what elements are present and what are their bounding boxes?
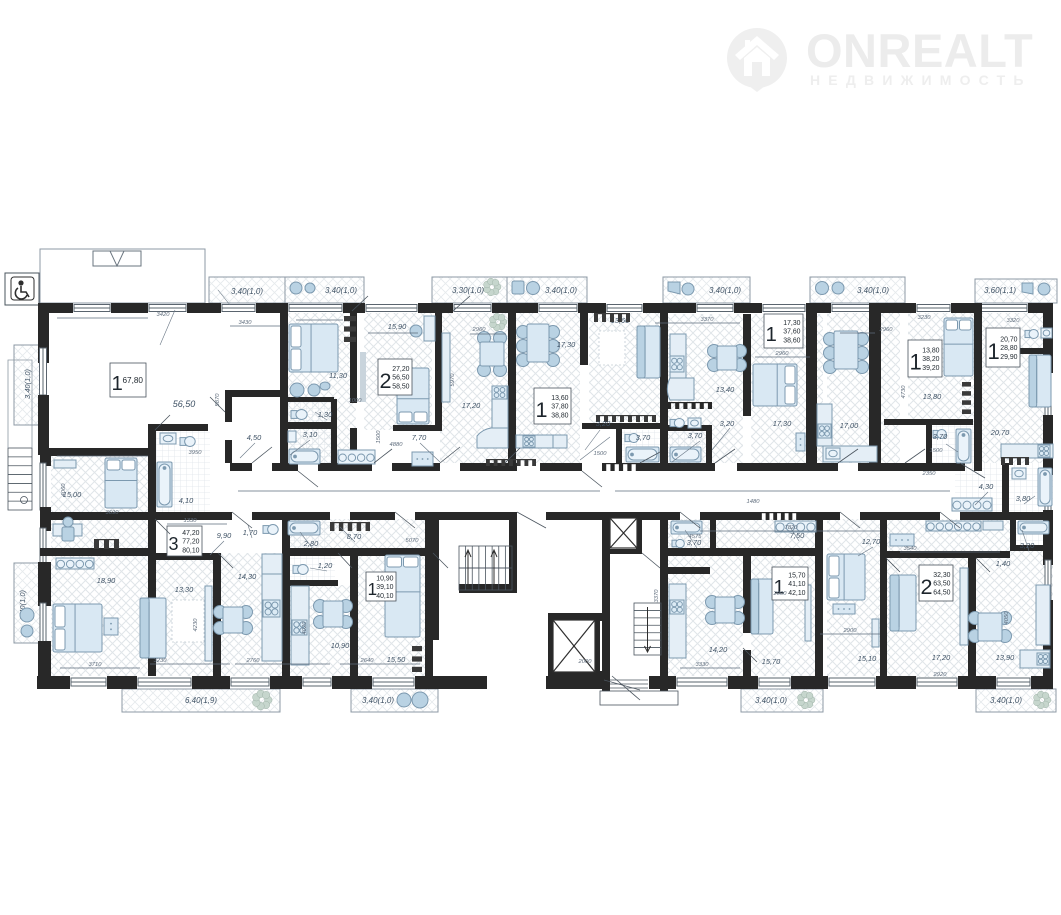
svg-text:2760: 2760 — [246, 658, 261, 664]
svg-text:58,50: 58,50 — [392, 383, 409, 390]
svg-text:63,50: 63,50 — [933, 581, 950, 588]
svg-text:38,80: 38,80 — [551, 412, 568, 419]
svg-text:27,20: 27,20 — [392, 366, 409, 373]
svg-text:4,10: 4,10 — [179, 496, 194, 505]
svg-text:7,70: 7,70 — [412, 433, 427, 442]
svg-text:2640: 2640 — [360, 658, 375, 664]
svg-text:17,30: 17,30 — [783, 320, 800, 327]
svg-text:20,70: 20,70 — [1000, 337, 1017, 344]
svg-text:1: 1 — [112, 373, 123, 395]
svg-text:5070: 5070 — [406, 538, 420, 544]
svg-text:3,10: 3,10 — [303, 430, 318, 439]
svg-text:7820: 7820 — [785, 525, 799, 531]
svg-text:1500: 1500 — [376, 430, 382, 444]
svg-text:4230: 4230 — [193, 618, 199, 632]
svg-text:4730: 4730 — [901, 385, 907, 399]
svg-text:4,50: 4,50 — [247, 433, 262, 442]
svg-text:1,30: 1,30 — [318, 410, 333, 419]
svg-text:3,40(1,0): 3,40(1,0) — [362, 696, 394, 705]
svg-text:3690: 3690 — [106, 510, 120, 516]
svg-text:2: 2 — [380, 368, 392, 393]
svg-text:4575: 4575 — [689, 534, 703, 540]
svg-text:2350: 2350 — [922, 471, 937, 477]
svg-text:3,40(1,0): 3,40(1,0) — [755, 696, 787, 705]
svg-text:4050: 4050 — [1004, 611, 1010, 625]
svg-text:НЕДВИЖИМОСТЬ: НЕДВИЖИМОСТЬ — [810, 72, 1032, 88]
svg-text:1500: 1500 — [594, 451, 608, 457]
svg-text:3,40(1,0): 3,40(1,0) — [325, 286, 357, 295]
svg-text:3,70: 3,70 — [688, 431, 703, 440]
svg-text:13,80: 13,80 — [923, 392, 942, 401]
svg-text:2960: 2960 — [775, 351, 790, 357]
svg-text:4880: 4880 — [390, 442, 404, 448]
svg-text:3950: 3950 — [189, 450, 203, 456]
svg-text:1: 1 — [910, 350, 922, 375]
svg-text:3430: 3430 — [239, 320, 253, 326]
svg-text:14,30: 14,30 — [238, 572, 257, 581]
svg-text:ONREALT: ONREALT — [806, 24, 1033, 77]
svg-text:3370: 3370 — [701, 317, 715, 323]
svg-text:15,70: 15,70 — [788, 573, 805, 580]
svg-text:28,80: 28,80 — [1000, 345, 1017, 352]
svg-text:3,40(1,0): 3,40(1,0) — [990, 696, 1022, 705]
svg-text:37,80: 37,80 — [551, 404, 568, 411]
svg-text:3370: 3370 — [654, 589, 660, 603]
svg-text:3,20: 3,20 — [596, 419, 611, 428]
svg-text:37,60: 37,60 — [783, 329, 800, 336]
svg-text:64,50: 64,50 — [933, 589, 950, 596]
svg-text:47,20: 47,20 — [182, 530, 199, 537]
svg-text:3,40(1,0): 3,40(1,0) — [231, 287, 263, 296]
svg-text:80,10: 80,10 — [182, 547, 199, 554]
svg-text:15,10: 15,10 — [858, 654, 877, 663]
svg-text:2960: 2960 — [472, 327, 487, 333]
svg-text:38,60: 38,60 — [783, 337, 800, 344]
svg-text:39,20: 39,20 — [922, 365, 939, 372]
svg-text:29,90: 29,90 — [1000, 354, 1017, 361]
svg-text:13,90: 13,90 — [996, 653, 1015, 662]
svg-text:67,80: 67,80 — [123, 376, 144, 385]
svg-text:56,50: 56,50 — [392, 375, 409, 382]
svg-text:56,50: 56,50 — [173, 399, 196, 409]
svg-text:10,90: 10,90 — [376, 576, 393, 583]
svg-text:1: 1 — [766, 324, 777, 346]
svg-text:12,70: 12,70 — [862, 537, 881, 546]
svg-text:17,20: 17,20 — [932, 653, 951, 662]
svg-text:3710: 3710 — [89, 662, 103, 668]
svg-text:17,20: 17,20 — [462, 401, 481, 410]
svg-text:18,90: 18,90 — [97, 576, 116, 585]
svg-text:17,30: 17,30 — [557, 340, 576, 349]
svg-text:1: 1 — [988, 339, 1000, 364]
svg-text:40,10: 40,10 — [376, 593, 393, 600]
svg-text:38,20: 38,20 — [922, 356, 939, 363]
svg-text:3230: 3230 — [154, 658, 168, 664]
svg-text:1,40: 1,40 — [996, 559, 1011, 568]
svg-text:11,30: 11,30 — [329, 371, 348, 380]
svg-text:77,20: 77,20 — [182, 539, 199, 546]
svg-text:4020: 4020 — [302, 621, 308, 635]
svg-text:3,70: 3,70 — [933, 432, 948, 441]
svg-text:13,80: 13,80 — [922, 348, 939, 355]
svg-text:2000: 2000 — [578, 659, 593, 665]
svg-text:13,30: 13,30 — [175, 585, 194, 594]
svg-text:2920: 2920 — [933, 672, 948, 678]
svg-text:5970: 5970 — [450, 373, 456, 387]
svg-text:13,40: 13,40 — [716, 385, 735, 394]
svg-text:6,40(1,9): 6,40(1,9) — [185, 696, 217, 705]
svg-text:3,40(1,0): 3,40(1,0) — [709, 286, 741, 295]
svg-text:20,70: 20,70 — [990, 428, 1010, 437]
svg-text:4,30: 4,30 — [979, 482, 994, 491]
svg-text:3420: 3420 — [157, 312, 171, 318]
svg-text:3,20: 3,20 — [720, 419, 735, 428]
svg-text:17,00: 17,00 — [840, 421, 859, 430]
svg-text:41,10: 41,10 — [788, 581, 805, 588]
svg-text:3330: 3330 — [696, 662, 710, 668]
svg-text:4060: 4060 — [61, 483, 67, 497]
svg-text:3,30(1,0): 3,30(1,0) — [452, 286, 484, 295]
svg-text:2900: 2900 — [843, 628, 858, 634]
svg-text:3,40(1,0): 3,40(1,0) — [857, 286, 889, 295]
svg-text:9,90: 9,90 — [217, 531, 232, 540]
svg-text:17,30: 17,30 — [773, 419, 792, 428]
svg-text:14,20: 14,20 — [709, 645, 728, 654]
svg-text:5870: 5870 — [215, 393, 221, 407]
svg-text:15,50: 15,50 — [387, 655, 406, 664]
svg-text:1500: 1500 — [930, 448, 944, 454]
svg-text:32,30: 32,30 — [933, 572, 950, 579]
svg-text:3,40(1,0): 3,40(1,0) — [23, 368, 32, 399]
svg-text:3320: 3320 — [1007, 318, 1021, 324]
svg-text:1480: 1480 — [747, 499, 761, 505]
svg-text:42,10: 42,10 — [788, 590, 805, 597]
svg-text:15,70: 15,70 — [762, 657, 781, 666]
svg-text:1,20: 1,20 — [318, 561, 333, 570]
svg-text:1000: 1000 — [349, 398, 363, 404]
svg-text:1330: 1330 — [184, 518, 198, 524]
svg-text:15,90: 15,90 — [388, 322, 407, 331]
svg-text:1: 1 — [536, 397, 548, 422]
svg-text:2960: 2960 — [879, 327, 894, 333]
svg-text:3230: 3230 — [918, 315, 932, 321]
svg-text:39,10: 39,10 — [376, 584, 393, 591]
svg-text:13,60: 13,60 — [551, 395, 568, 402]
svg-text:10,90: 10,90 — [331, 641, 350, 650]
svg-text:3540: 3540 — [904, 546, 918, 552]
svg-text:2000: 2000 — [773, 591, 788, 597]
svg-text:3,80: 3,80 — [1016, 494, 1031, 503]
svg-text:3,40(1,0): 3,40(1,0) — [545, 286, 577, 295]
svg-text:3: 3 — [169, 534, 179, 554]
svg-text:2: 2 — [921, 574, 933, 599]
svg-text:3,70: 3,70 — [636, 433, 651, 442]
svg-text:3,60(1,1): 3,60(1,1) — [984, 286, 1016, 295]
